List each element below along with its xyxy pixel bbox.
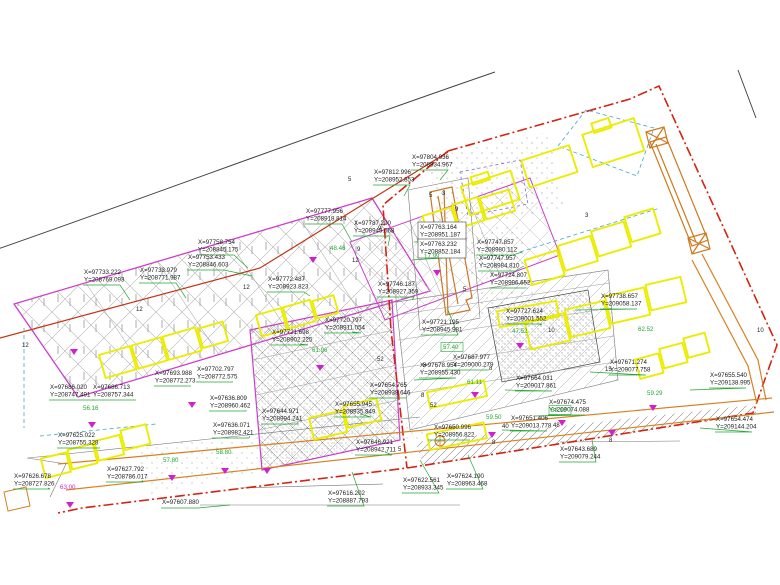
coordinate-y-value: Y=208846.603 [188,262,229,269]
coordinate-y-value: Y=208887.793 [328,498,369,505]
elevation-label: 61.96 [312,347,328,354]
coordinate-y-value: Y=208927.359 [378,289,419,296]
coordinate-label: X=97733.979Y=208771.987 [140,267,181,282]
dimension-label: 3 [585,213,589,219]
coordinate-x-value: X=97644.971 [262,408,300,415]
leader-line [209,410,246,411]
coordinate-x-value: X=97671.274 [610,359,648,366]
coordinate-label: X=97654.765Y=208938.646 [370,382,411,397]
coordinate-y-value: Y=208934.967 [412,162,453,169]
dimension-label: 8 [609,438,613,444]
elevation-label: 48.46 [330,245,346,252]
coordinate-y-value: Y=208918.814 [306,216,347,223]
coordinate-y-value: Y=209077.758 [610,367,651,374]
coordinate-label: X=97753.433Y=208846.603 [188,254,229,269]
coordinate-label: X=97747.957Y=208984.810 [479,255,520,270]
building-block-top3 [580,111,644,168]
coordinate-label: X=97746.187Y=208927.359 [378,281,419,296]
coordinate-x-value: X=97626.678 [14,473,52,480]
coordinate-label: X=97727.624Y=209001.552 [506,308,547,323]
coordinate-label: X=97758.754Y=208845.175 [198,239,239,254]
coordinate-y-value: Y=208786.017 [107,474,148,481]
dimension-label: 48 [553,423,560,429]
dimension-label: 15 [605,367,612,373]
coordinate-label: X=97787.290Y=208949.068 [354,220,395,235]
coordinate-x-value: X=97686.713 [93,384,131,391]
coordinate-x-value: X=97624.190 [447,473,485,480]
coordinate-label: X=97616.202Y=208887.793 [328,490,369,505]
coordinate-y-value: Y=208755.328 [58,440,99,447]
coordinate-label: X=97763.164Y=208951.187 [418,222,466,241]
coordinate-y-value: Y=208747.491 [50,392,91,399]
coordinate-label: X=97664.031Y=209017.861 [516,375,557,390]
coordinate-label: X=97625.022Y=208755.328 [58,432,99,447]
coordinate-x-value: X=97655.540 [710,372,748,379]
coordinate-label: X=97687.977Y=209000.279 [453,354,494,369]
coordinate-x-value: X=97758.754 [198,239,236,246]
coordinate-label: X=97622.561Y=208933.345 [403,477,444,492]
survey-marker-triangle [66,502,74,508]
coordinate-x-value: X=97651.406 [511,415,549,422]
coordinate-y-value: Y=208942.711 [356,447,397,454]
coordinate-label: X=97644.971Y=208994.241 [262,408,303,423]
coordinate-y-value: Y=208845.175 [198,247,239,254]
elevation-label: 47.52 [512,328,528,335]
coordinate-label: X=97636.071Y=208982.421 [213,422,254,437]
coordinate-y-value: Y=209001.552 [506,316,547,323]
coordinate-y-value: Y=209138.995 [710,380,751,387]
coordinate-x-value: X=97702.797 [197,366,235,373]
coordinate-x-value: X=97733.979 [140,267,178,274]
coordinate-y-value: Y=208955.430 [420,370,461,377]
coordinate-x-value: X=97772.487 [268,276,306,283]
coordinate-y-value: Y=209013.778 [511,423,552,430]
coordinate-y-value: Y=208963.468 [447,481,488,488]
coordinate-y-value: Y=208933.345 [403,485,444,492]
coordinate-y-value: Y=208769.093 [84,277,125,284]
coordinate-y-value: Y=208960.462 [210,403,251,410]
coordinate-x-value: X=97625.022 [58,432,96,439]
dimension-label: 12 [22,343,29,349]
coordinate-label: X=97655.945Y=208935.849 [335,401,376,416]
coordinate-x-value: X=97747.957 [479,255,517,262]
coordinate-x-value: X=97727.624 [506,308,544,315]
dimension-label: 52 [377,357,384,363]
coordinate-label: X=97738.657Y=209058.137 [601,293,642,308]
coordinate-x-value: X=97664.031 [516,375,554,382]
coordinate-y-value: Y=208956.822 [434,432,475,439]
coordinate-x-value: X=97721.698 [272,329,310,336]
elevation-label: 62.52 [638,326,654,333]
coordinate-x-value: X=97654.474 [716,416,754,423]
coordinate-y-value: Y=209000.279 [453,362,494,369]
orange-structure-bottom-left [4,487,30,511]
coordinate-label: X=97747.857Y=208980.112 [477,239,518,254]
coordinate-y-value: Y=208902.225 [272,337,313,344]
dimension-label: 12 [243,285,250,291]
coordinate-x-value: X=97650.996 [434,424,472,431]
coordinate-label: X=97671.274Y=209077.758 [610,359,651,374]
coordinate-x-value: X=97733.222 [84,269,122,276]
coordinate-y-value: Y=208952.853 [374,177,415,184]
elevation-label: 58.10 [551,407,567,414]
survey-marker-triangle [649,405,657,411]
coordinate-x-value: X=97746.187 [378,281,416,288]
coordinate-y-value: Y=208911.054 [325,325,366,332]
coordinate-x-value: X=97753.433 [188,254,226,261]
coordinate-x-value: X=97687.977 [453,354,491,361]
coordinate-y-value: Y=208938.646 [370,390,411,397]
coordinate-y-value: Y=208949.068 [354,228,395,235]
dimension-label: 40 [502,424,509,430]
survey-marker-triangle [88,422,96,428]
coordinate-x-value: X=97747.857 [477,239,515,246]
coordinate-x-value: X=97721.195 [422,319,460,326]
coordinate-y-value: Y=208757.344 [93,392,134,399]
survey-marker-triangle [188,402,196,408]
coordinate-label: X=97772.487Y=208923.823 [268,276,309,291]
dimension-label: 52 [430,403,437,409]
coordinate-x-value: X=97627.792 [107,466,145,473]
coordinate-label: X=97721.195Y=208945.981 [422,319,463,334]
coordinate-label: X=97777.956Y=208918.814 [306,208,347,223]
coordinate-x-value: X=97686.020 [50,384,88,391]
coordinate-y-value: Y=209079.244 [560,454,601,461]
leader-line [690,388,746,390]
coordinate-x-value: X=97636.071 [213,422,251,429]
coordinate-label: X=97646.921Y=208942.711 [356,439,397,454]
coordinate-x-value: X=97720.797 [325,317,363,324]
coordinate-label: X=97655.540Y=209138.995 [710,372,751,387]
dimension-label: 10 [548,328,555,334]
coordinate-label: X=97804.936Y=208934.967 [412,154,453,169]
dimension-label: 5 [348,177,352,183]
site-plan-drawing: X=97733.222Y=208769.093X=97733.979Y=2087… [0,0,780,585]
elevation-label: 57.40 [443,344,459,351]
coordinate-label: X=97607.880 [162,499,200,506]
elevation-label: 56.16 [83,405,99,412]
coordinate-x-value: X=97607.880 [162,499,200,506]
dimension-label: 5 [429,193,433,199]
coordinate-y-value: Y=208994.241 [262,416,303,423]
road-segment-topright [738,70,756,118]
dimension-label: 5 [398,447,402,453]
coordinate-y-value: Y=208996.652 [490,280,531,287]
coordinate-x-value: X=97616.202 [328,490,366,497]
coordinate-label: X=97686.020Y=208747.491 [50,384,91,399]
coordinate-label: X=97812.996Y=208952.853 [374,169,415,184]
coordinate-x-value: X=97738.657 [601,293,639,300]
coordinate-y-value: Y=208772.575 [197,374,238,381]
coordinate-y-value: Y=208727.826 [14,481,55,488]
coordinate-x-value: X=97674.475 [549,399,587,406]
coordinate-x-value: X=97622.561 [403,477,441,484]
coordinate-label: X=97636.809Y=208960.462 [210,395,251,410]
coordinate-x-value: X=97654.765 [370,382,408,389]
coordinate-y-value: Y=208984.810 [479,263,520,270]
elevation-label: 59.50 [486,414,502,421]
coordinate-x-value: X=97804.936 [412,154,450,161]
coordinate-y-value: Y=208772.273 [155,378,196,385]
coordinate-x-value: X=97763.164 [420,224,458,231]
coordinate-x-value: X=97763.232 [420,241,458,248]
coordinate-y-value: Y=209144.204 [716,424,757,431]
coordinate-label: X=97626.678Y=208727.826 [14,473,55,488]
coordinate-label: X=97693.988Y=208772.273 [155,370,196,385]
coordinate-x-value: X=97787.290 [354,220,392,227]
coordinate-x-value: X=97646.921 [356,439,394,446]
coordinate-label: X=97654.474Y=209144.204 [716,416,757,431]
coordinate-label: X=97721.698Y=208902.225 [272,329,313,344]
elevation-label: 61.11 [467,379,483,386]
coordinate-x-value: X=97655.945 [335,401,373,408]
coordinate-y-value: Y=208945.981 [422,327,463,334]
coordinate-x-value: X=97777.956 [306,208,344,215]
coordinate-y-value: Y=209058.137 [601,301,642,308]
coordinate-x-value: X=97693.988 [155,370,193,377]
coordinate-label: X=97724.807Y=208996.652 [490,272,531,287]
coordinate-x-value: X=97643.689 [560,446,598,453]
coordinate-label: X=97624.190Y=208963.468 [447,473,488,488]
coordinate-y-value: Y=208923.823 [268,284,309,291]
elevation-label: 59.29 [647,390,663,397]
coordinate-y-value: Y=208951.187 [420,232,461,239]
coordinate-y-value: Y=209017.861 [516,383,557,390]
coordinate-label: X=97686.713Y=208757.344 [93,384,134,399]
coordinate-label: X=97733.222Y=208769.093 [84,269,125,284]
coordinate-y-value: Y=208771.987 [140,275,181,282]
elevation-label: 58.80 [216,449,232,456]
coordinate-y-value: Y=208980.112 [477,247,518,254]
coordinate-label: X=97643.689Y=209079.244 [560,446,601,461]
coordinate-label: X=97650.996Y=208956.822 [434,424,475,439]
dimension-label: 12 [136,307,143,313]
dimension-label: 12 [352,258,359,264]
site-plan-canvas: X=97733.222Y=208769.093X=97733.979Y=2087… [0,0,780,585]
coordinate-label: X=97651.406Y=209013.778 [511,415,552,430]
elevation-label: 57.80 [163,457,179,464]
dimension-label: 10 [757,328,764,334]
elevation-label: 63.00 [60,484,76,491]
coordinate-x-value: X=97812.996 [374,169,412,176]
survey-marker-triangle [263,468,271,474]
coordinate-x-value: X=97724.807 [490,272,528,279]
coordinate-label: X=97702.797Y=208772.575 [197,366,238,381]
coordinate-label: X=97627.792Y=208786.017 [107,466,148,481]
elevation-label: 17.99 [424,253,440,260]
coordinate-y-value: Y=208935.849 [335,409,376,416]
coordinate-y-value: Y=208982.421 [213,430,254,437]
coordinate-label: X=97720.797Y=208911.054 [325,317,366,332]
coordinate-x-value: X=97636.809 [210,395,248,402]
